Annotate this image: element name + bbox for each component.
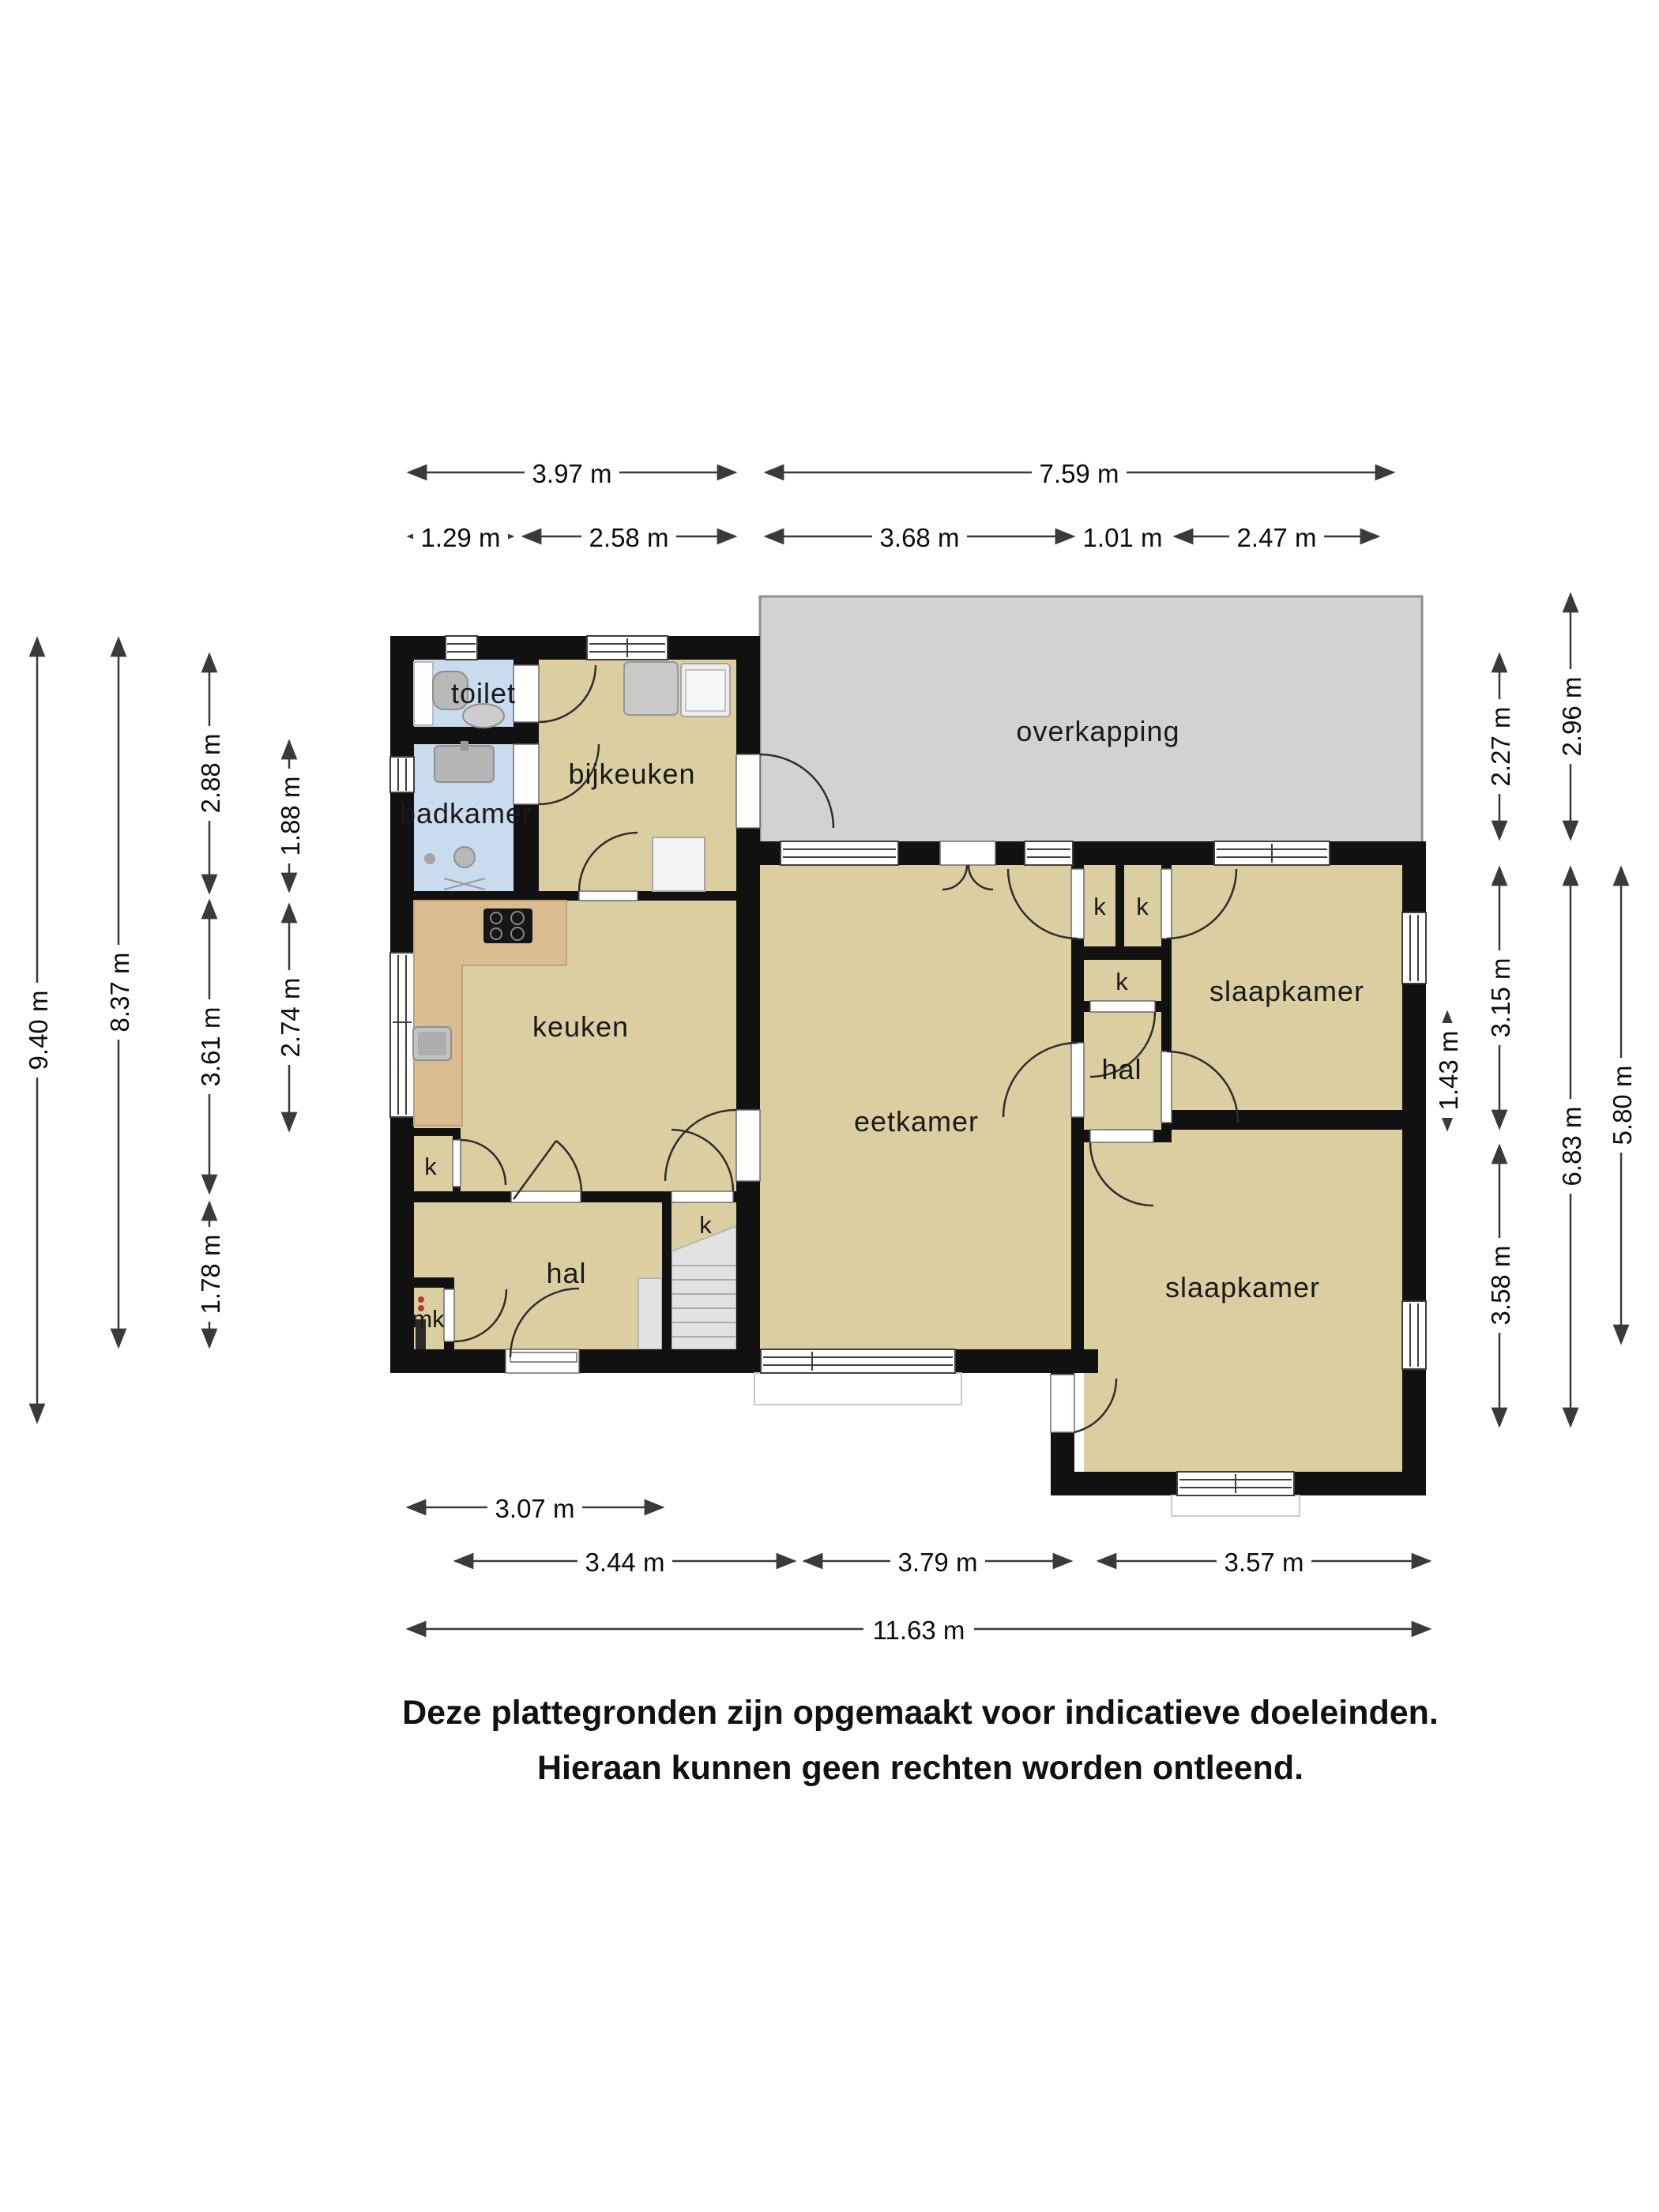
footer-disclaimer: Deze plattegronden zijn opgemaakt voor i… [402,1694,1439,1787]
svg-text:1.88 m: 1.88 m [276,777,305,856]
dryer-door [686,670,725,711]
dim-bottom-2: 3.79 m [804,1546,1071,1577]
svg-text:11.63 m: 11.63 m [873,1616,965,1645]
svg-text:1.01 m: 1.01 m [1083,523,1163,552]
window-slaapkamer2-bottom [1172,1472,1300,1516]
dim-right-5: 5.80 m [1606,867,1637,1343]
cooktop [483,908,532,943]
dim-top-4: 3.68 m [766,521,1074,552]
bijkeuken-label: bijkeuken [568,758,695,790]
window-bijkeuken-top [587,636,668,660]
dim-left-0: 9.40 m [22,638,53,1422]
svg-text:3.44 m: 3.44 m [585,1548,665,1577]
floorplan-page: overkapping toilet badkamer bijkeuken ke… [0,0,1659,2212]
svg-text:3.68 m: 3.68 m [880,523,960,552]
svg-text:1.43 m: 1.43 m [1434,1031,1463,1111]
dim-right-0: 2.96 m [1556,594,1586,839]
hal-left-label: hal [546,1257,586,1289]
footer-line-1: Deze plattegronden zijn opgemaakt voor i… [402,1694,1439,1732]
svg-text:1.78 m: 1.78 m [196,1235,225,1315]
dim-top-3: 2.58 m [523,521,735,552]
shower-head [454,847,475,867]
closet-k1-label: k [1093,893,1106,920]
dim-right-2: 3.15 m [1484,867,1515,1128]
window-slaapkamer2-right [1402,1301,1426,1369]
floorplan-canvas: overkapping toilet badkamer bijkeuken ke… [0,0,1659,2212]
closet-stairs-label: k [699,1211,712,1239]
badkamer-sink [434,746,494,782]
dim-bottom-1: 3.44 m [455,1546,795,1577]
dim-top-0: 3.97 m [408,457,735,488]
svg-text:1.29 m: 1.29 m [421,523,501,552]
shower-drain [424,853,435,864]
svg-text:3.79 m: 3.79 m [898,1548,978,1577]
svg-text:3.58 m: 3.58 m [1486,1246,1515,1326]
dim-right-4: 6.83 m [1556,867,1586,1426]
svg-text:9.40 m: 9.40 m [24,991,53,1070]
dim-top-6: 2.47 m [1175,521,1379,552]
kitchen-sink-basin [418,1032,446,1055]
badkamer-sink-tap [461,741,468,750]
dim-top-5: 1.01 m [1075,521,1170,552]
slaapkamer2-label: slaapkamer [1165,1271,1320,1303]
dim-left-4: 1.78 m [194,1202,225,1347]
dim-left-2: 2.88 m [194,654,225,893]
overkapping-label: overkapping [1016,715,1179,747]
dim-bottom-3: 3.57 m [1098,1546,1430,1577]
window-eetkamer-top-1 [781,841,898,865]
svg-text:6.83 m: 6.83 m [1557,1107,1586,1187]
toilet-cabinet [414,662,433,725]
window-eetkamer-bottom [754,1349,961,1405]
window-eetkamer-top-2 [1025,841,1073,865]
svg-text:3.15 m: 3.15 m [1486,958,1515,1038]
closet-k2-label: k [1136,893,1149,920]
hal-right-label: hal [1101,1053,1142,1085]
dim-right-1: 2.27 m [1484,654,1515,839]
svg-text:2.74 m: 2.74 m [276,978,305,1058]
window-badkamer-left [390,757,414,792]
svg-text:2.96 m: 2.96 m [1557,677,1586,757]
svg-text:3.57 m: 3.57 m [1224,1548,1304,1577]
eetkamer-label: eetkamer [854,1105,979,1138]
window-keuken-left [390,953,414,1117]
svg-text:2.58 m: 2.58 m [589,523,669,552]
dim-bottom-0: 3.07 m [408,1492,663,1523]
window-toilet-top [446,636,477,660]
dim-left-6: 2.74 m [274,905,305,1130]
toilet-label: toilet [451,677,516,709]
window-slaapkamer1-top [1214,841,1330,865]
svg-text:5.80 m: 5.80 m [1608,1066,1637,1145]
badkamer-label: badkamer [400,797,532,829]
svg-text:3.61 m: 3.61 m [196,1007,225,1087]
dim-top-1: 7.59 m [766,457,1394,488]
dim-left-5: 1.88 m [274,741,305,891]
svg-text:2.88 m: 2.88 m [196,734,225,814]
closet-keuken-label: k [424,1153,437,1180]
svg-text:7.59 m: 7.59 m [1040,459,1119,488]
closet-k3-label: k [1115,968,1128,995]
svg-text:3.07 m: 3.07 m [495,1494,575,1523]
washer [624,662,678,715]
dim-left-3: 3.61 m [194,901,225,1193]
keuken-label: keuken [532,1010,629,1043]
dim-right-6: 3.58 m [1484,1145,1515,1426]
dim-left-1: 8.37 m [103,638,134,1347]
meterkast-label: mk [412,1305,445,1333]
footer-line-2: Hieraan kunnen geen rechten worden ontle… [537,1749,1303,1787]
slaapkamer1-label: slaapkamer [1209,975,1364,1007]
fridge [653,837,705,891]
svg-text:8.37 m: 8.37 m [105,953,134,1033]
svg-text:3.97 m: 3.97 m [532,459,612,488]
dim-right-3: 1.43 m [1432,1012,1463,1130]
dim-top-2: 1.29 m [408,521,513,552]
stairs-landing [638,1278,662,1349]
window-slaapkamer1-right [1402,912,1426,984]
meter-indicator [418,1296,424,1303]
svg-text:2.27 m: 2.27 m [1486,707,1515,787]
dim-bottom-4: 11.63 m [408,1614,1430,1645]
svg-text:2.47 m: 2.47 m [1237,523,1317,552]
